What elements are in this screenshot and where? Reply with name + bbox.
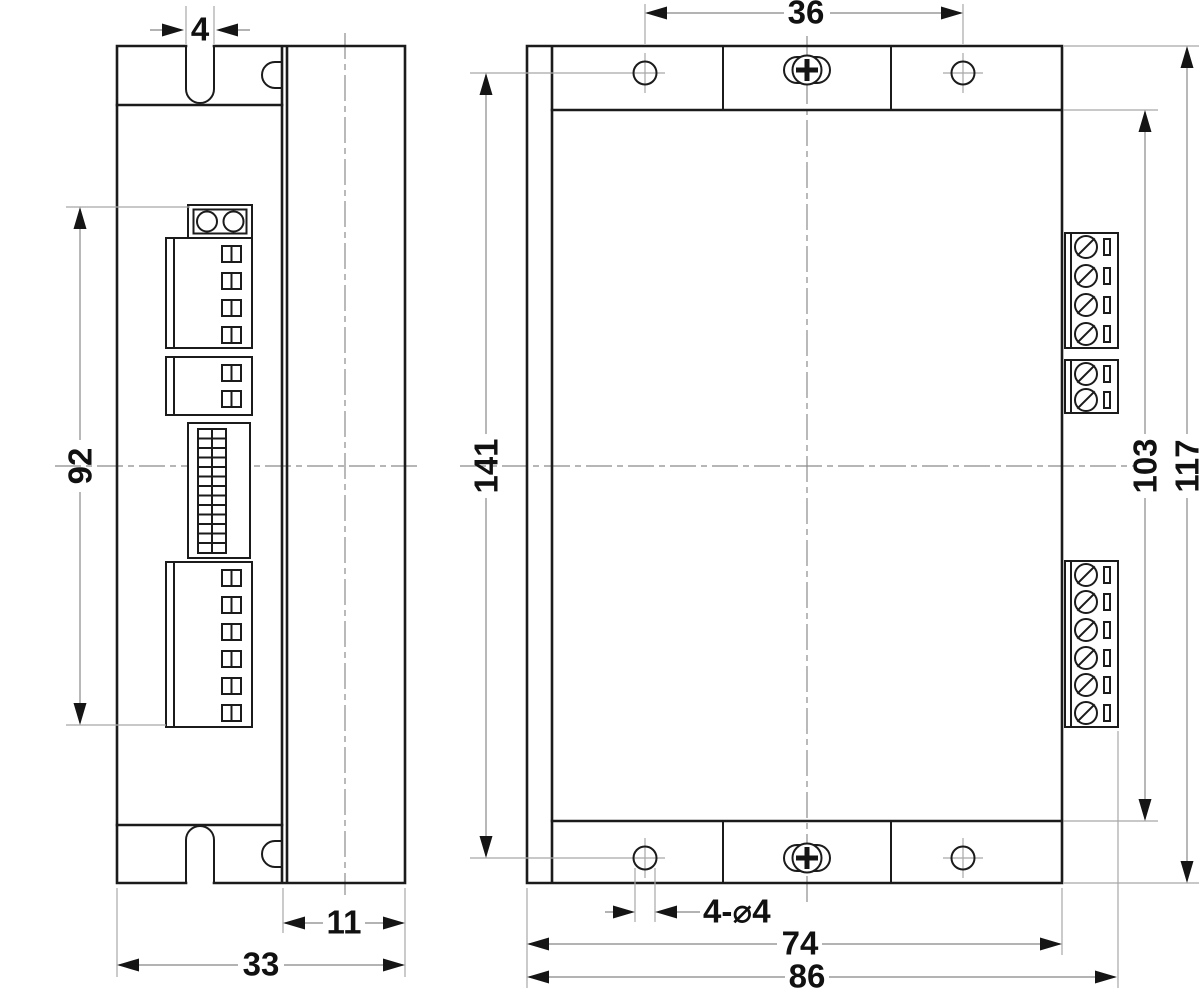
drawing-canvas: 4 92 11 33 [0, 0, 1200, 992]
arrowhead [216, 24, 238, 37]
terminal-6screw-front [1065, 561, 1118, 727]
dim-hole-spacing-top: 36 [645, 0, 963, 44]
dim-body-depth-label: 11 [327, 904, 362, 941]
terminal-body [1065, 561, 1118, 727]
arrowhead [527, 971, 549, 984]
outline-drawing-svg: 4 92 11 33 [0, 0, 1200, 992]
dim-hole-callout: 4-⌀4 [605, 868, 771, 930]
dim-connector-region-label: 92 [62, 448, 99, 485]
arrowhead [74, 703, 87, 725]
terminal-4screw-front [1065, 233, 1118, 348]
arrowhead [74, 207, 87, 229]
dim-flange-outer-label: 117 [1169, 439, 1200, 492]
arrowhead [383, 917, 405, 930]
dim-slot-width-label: 4 [191, 11, 210, 48]
top-slot [186, 46, 214, 103]
arrowhead [383, 959, 405, 972]
terminal-6pos-side [166, 562, 252, 727]
arrowhead [1181, 46, 1194, 68]
dim-overall-depth: 33 [117, 888, 405, 983]
terminal-4pos-body [166, 238, 252, 348]
arrowhead [645, 7, 667, 20]
dim-overall-width-label: 86 [789, 958, 826, 992]
dim-slot-width: 4 [150, 6, 250, 48]
arrowhead [941, 7, 963, 20]
dip-switch-bank [188, 423, 250, 558]
arrowhead [655, 906, 677, 919]
front-view: 36 141 103 117 [460, 0, 1200, 992]
dim-hole-callout-label: 4-⌀4 [703, 893, 771, 930]
screw-cross-v [805, 59, 810, 81]
arrowhead [1181, 861, 1194, 883]
center-screw-bottom [784, 844, 830, 873]
arrowhead [117, 959, 139, 972]
side-outline [117, 46, 405, 883]
socket-2pin [188, 205, 252, 238]
bottom-ear [262, 841, 282, 867]
center-screw-top [784, 56, 830, 85]
dim-flange-width-label: 74 [782, 925, 819, 962]
arrowhead [1040, 938, 1062, 951]
arrowhead [1095, 971, 1117, 984]
bottom-slot [186, 826, 214, 883]
arrowhead [613, 906, 635, 919]
top-ear [262, 62, 282, 88]
terminal-2pos-side [166, 357, 252, 415]
connector-stack-side [166, 205, 252, 727]
dim-vertical-hole-span-label: 141 [468, 438, 505, 493]
dim-hole-spacing-top-label: 36 [788, 0, 825, 31]
arrowhead [283, 917, 305, 930]
dim-flange-inner-label: 103 [1127, 438, 1164, 493]
dim-overall-depth-label: 33 [243, 946, 280, 983]
arrowhead [527, 938, 549, 951]
arrowhead [480, 73, 493, 95]
front-outline [527, 46, 1062, 883]
terminal-4pos-side [166, 238, 252, 348]
terminal-2screw-front [1065, 360, 1118, 413]
arrowhead [162, 24, 184, 37]
side-view: 4 92 11 33 [55, 6, 420, 983]
screw-cross-v [805, 847, 810, 869]
arrowhead [480, 836, 493, 858]
arrowhead [1139, 110, 1152, 132]
arrowhead [1139, 799, 1152, 821]
